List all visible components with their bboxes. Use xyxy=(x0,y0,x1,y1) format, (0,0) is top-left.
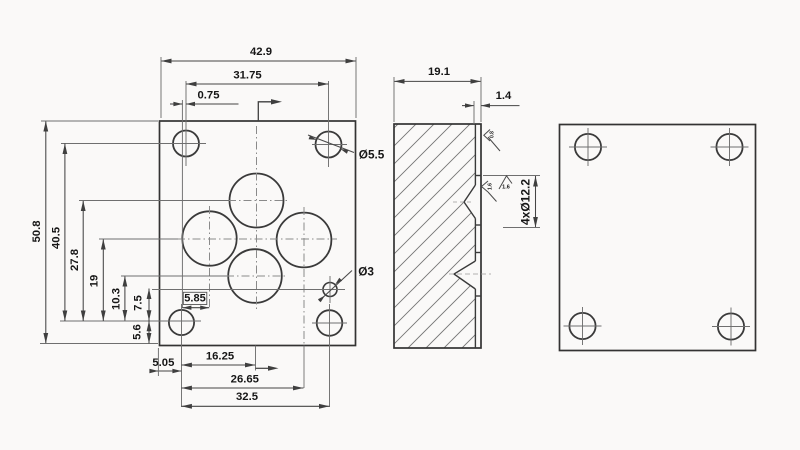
svg-text:4xØ12.2: 4xØ12.2 xyxy=(519,179,533,225)
svg-text:19: 19 xyxy=(89,275,101,288)
svg-text:40.5: 40.5 xyxy=(51,227,63,249)
svg-text:5.85: 5.85 xyxy=(184,293,205,305)
svg-text:0.75: 0.75 xyxy=(198,90,220,102)
svg-text:16.25: 16.25 xyxy=(206,351,234,363)
svg-text:10.3: 10.3 xyxy=(111,288,123,310)
svg-text:31.75: 31.75 xyxy=(233,70,261,82)
svg-text:42.9: 42.9 xyxy=(250,46,272,58)
svg-text:50.8: 50.8 xyxy=(31,221,43,243)
svg-text:26.65: 26.65 xyxy=(231,374,259,386)
svg-text:19.1: 19.1 xyxy=(428,66,450,78)
svg-text:Ø3: Ø3 xyxy=(358,264,374,278)
svg-text:1.6: 1.6 xyxy=(488,183,494,190)
svg-text:1.6: 1.6 xyxy=(502,185,510,191)
svg-text:5.05: 5.05 xyxy=(152,357,174,369)
svg-text:0.8: 0.8 xyxy=(490,131,496,138)
svg-text:5.6: 5.6 xyxy=(132,324,144,340)
svg-text:27.8: 27.8 xyxy=(69,249,81,271)
svg-text:7.5: 7.5 xyxy=(133,295,145,311)
svg-text:1.4: 1.4 xyxy=(496,90,512,102)
svg-text:32.5: 32.5 xyxy=(236,391,258,403)
svg-text:Ø5.5: Ø5.5 xyxy=(359,148,385,162)
